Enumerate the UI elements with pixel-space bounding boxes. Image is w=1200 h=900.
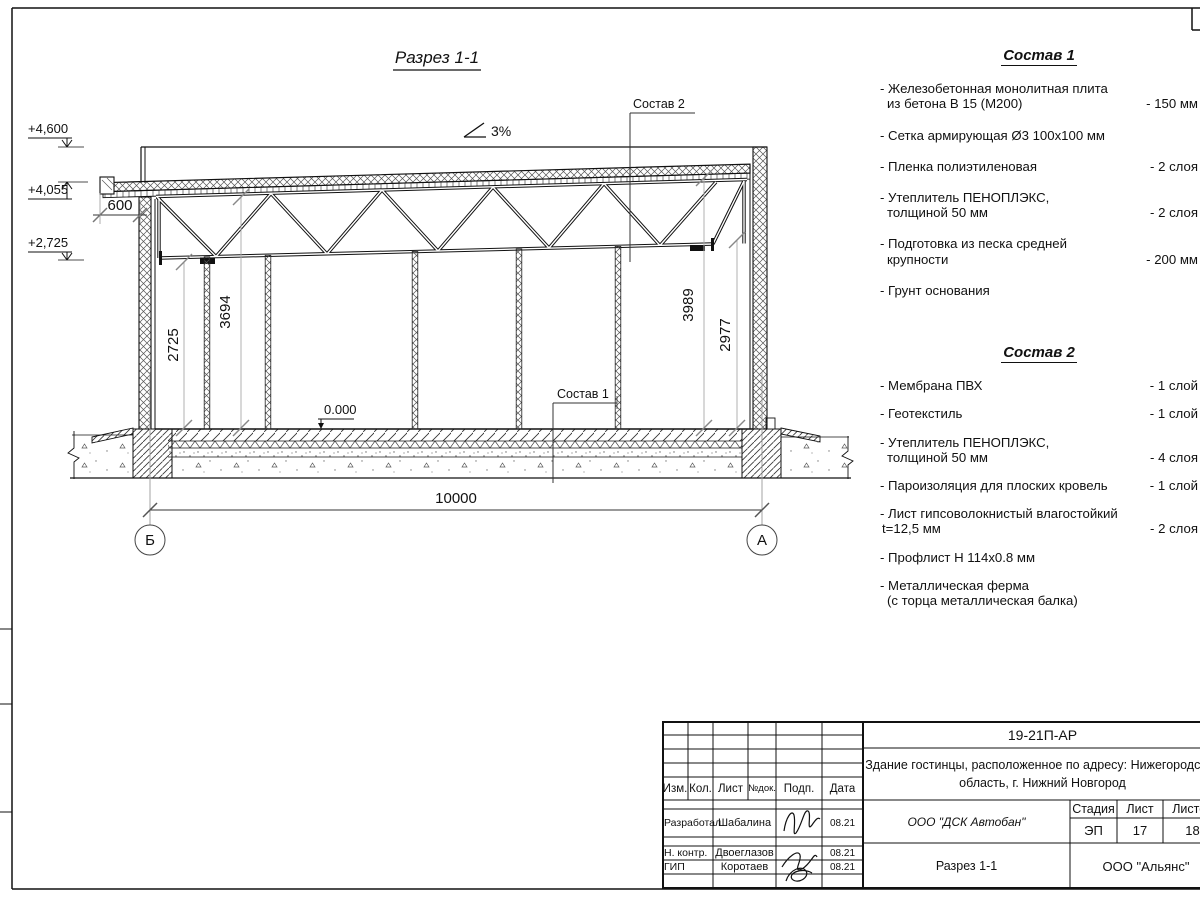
spec1-item: - Подготовка из песка среднейкрупности -… xyxy=(880,236,1198,266)
elevation-text-2725: +2,725 xyxy=(28,235,68,250)
roof-truss xyxy=(156,180,747,266)
spec-list-sostav-2: Состав 2 - Мембрана ПВХ - 1 слой - Геоте… xyxy=(880,345,1198,621)
tb-doc-number: 19-21П-АР xyxy=(863,721,1200,748)
spec-list-sostav-1: Состав 1 - Железобетонная монолитная пли… xyxy=(880,48,1198,314)
spec2-item: - Мембрана ПВХ - 1 слой xyxy=(880,378,1198,393)
dim-height-2977: 2977 xyxy=(717,232,745,436)
tb-company: ООО "Альянс" xyxy=(1070,843,1200,889)
tb-sheet-label: Лист xyxy=(1117,800,1163,818)
spec2-title: Состав 2 xyxy=(880,345,1198,360)
fold-marks xyxy=(0,629,12,812)
elevation-mark-2725 xyxy=(28,252,84,260)
svg-text:3694: 3694 xyxy=(217,295,234,328)
tb-name-gip: Коротаев xyxy=(713,860,776,874)
drawing-sheet: Б А 10000 600 2725 3694 xyxy=(0,0,1200,900)
foundation-left xyxy=(72,428,172,478)
svg-text:2977: 2977 xyxy=(717,318,734,351)
svg-text:0.000: 0.000 xyxy=(324,402,357,417)
tb-sheets-label: Листов xyxy=(1163,800,1200,818)
dim-span-10000: 10000 xyxy=(143,490,769,517)
tb-project-name: Здание гостинцы, расположенное по адресу… xyxy=(863,748,1200,800)
spec1-item: - Грунт основания xyxy=(880,283,1198,298)
spec2-item: - Лист гипсоволокнистый влагостойкийt=12… xyxy=(880,506,1198,536)
interior-columns xyxy=(204,246,621,429)
svg-text:Состав 1: Состав 1 xyxy=(557,387,609,401)
svg-text:3%: 3% xyxy=(491,123,511,139)
tb-stage-label: Стадия xyxy=(1070,800,1117,818)
tb-org: ООО "ДСК Автобан" xyxy=(863,800,1070,843)
drawing-title: Разрез 1-1 xyxy=(395,48,479,67)
tb-name-razrabotal: Шабалина xyxy=(713,809,776,837)
dim-height-2725: 2725 xyxy=(165,254,192,436)
slope-mark: 3% xyxy=(464,123,511,139)
spec1-item: - Пленка полиэтиленовая - 2 слоя xyxy=(880,159,1198,174)
right-wall xyxy=(750,147,767,429)
floor-layers xyxy=(155,429,753,478)
tb-col-izm: Изм. xyxy=(662,777,688,800)
tb-stage-value: ЭП xyxy=(1070,818,1117,843)
tb-role-nkontr: Н. контр. xyxy=(664,846,713,860)
tb-col-ndok: №док. xyxy=(748,777,776,800)
spec1-title: Состав 1 xyxy=(880,48,1198,63)
spec2-item: - Пароизоляция для плоских кровель - 1 с… xyxy=(880,478,1198,493)
level-mark-zero: 0.000 xyxy=(318,402,357,429)
elevation-mark-4600 xyxy=(28,138,84,147)
tb-sheet-number: 17 xyxy=(1117,818,1163,843)
tb-date-nkontr: 08.21 xyxy=(822,846,863,860)
elevation-text-4600: +4,600 xyxy=(28,121,68,136)
tb-col-kol: Кол. xyxy=(688,777,713,800)
dim-height-3989: 3989 xyxy=(680,170,712,436)
tb-col-list: Лист xyxy=(713,777,748,800)
spec1-item: - Утеплитель ПЕНОПЛЭКС,толщиной 50 мм - … xyxy=(880,190,1198,220)
title-block: Изм. Кол. Лист №док. Подп. Дата Разработ… xyxy=(662,721,1200,889)
tb-date-gip: 08.21 xyxy=(822,860,863,874)
tb-col-podp: Подп. xyxy=(776,777,822,800)
svg-text:10000: 10000 xyxy=(435,490,477,507)
spec2-item: - Утеплитель ПЕНОПЛЭКС,толщиной 50 мм - … xyxy=(880,435,1198,465)
axis-label-left: Б xyxy=(145,532,155,549)
spec2-item: - Геотекстиль - 1 слой xyxy=(880,406,1198,421)
tb-sheet-title: Разрез 1-1 xyxy=(863,843,1070,889)
tb-col-data: Дата xyxy=(822,777,863,800)
svg-text:3989: 3989 xyxy=(680,288,697,321)
svg-text:Состав 2: Состав 2 xyxy=(633,97,685,111)
tb-name-nkontr: Двоеглазов xyxy=(713,846,776,860)
spec1-item: - Железобетонная монолитная плитаиз бето… xyxy=(880,81,1198,111)
spec2-item: - Профлист Н 114x0.8 мм xyxy=(880,550,1198,565)
svg-text:2725: 2725 xyxy=(165,328,182,361)
spec2-item: - Металлическая ферма(с торца металличес… xyxy=(880,578,1198,608)
elevation-text-4055: +4,055 xyxy=(28,182,68,197)
spec1-item: - Сетка армирующая Ø3 100x100 мм xyxy=(880,128,1198,143)
tb-sheets-total: 18 xyxy=(1163,818,1200,843)
tb-role-razrabotal: Разработал xyxy=(664,809,713,837)
axis-label-right: А xyxy=(757,532,767,549)
axis-circles xyxy=(135,525,777,555)
svg-text:600: 600 xyxy=(107,197,132,214)
tb-date-razrabotal: 08.21 xyxy=(822,809,863,837)
tb-role-gip: ГИП xyxy=(664,860,713,874)
